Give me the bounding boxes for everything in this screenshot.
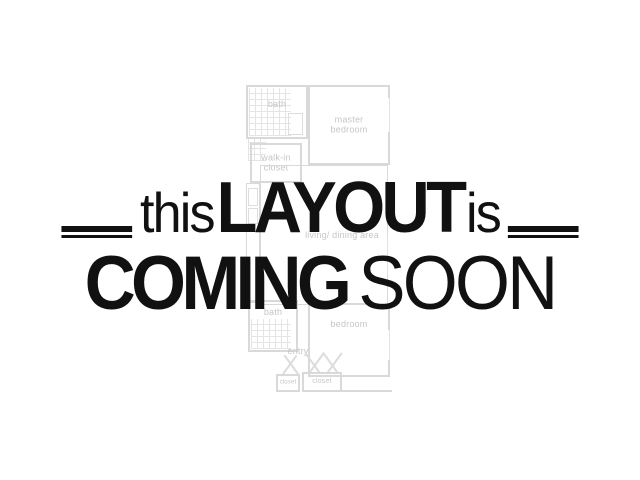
room-closet-small: closet xyxy=(276,374,300,392)
room-label: master bedroom xyxy=(310,115,388,136)
headline-word-coming: COMING xyxy=(85,246,348,322)
headline-word-soon: SOON xyxy=(358,246,555,322)
rule-bar-thin xyxy=(508,235,579,238)
bifold-door-mark xyxy=(323,351,341,373)
headline-word-this: this xyxy=(140,185,214,241)
room-closet-main: closet xyxy=(302,372,342,392)
window-marker xyxy=(387,98,392,132)
headline-word-layout: LAYOUT xyxy=(216,172,463,244)
bifold-door-mark xyxy=(305,351,323,373)
wall-segment xyxy=(342,390,392,392)
coming-soon-placeholder: bath master bedroom walk-in closet livin… xyxy=(0,0,640,480)
bath-fixture xyxy=(288,113,303,135)
headline-line-2: COMING SOON xyxy=(22,246,617,322)
room-label: bath xyxy=(248,99,306,109)
room-label: closet xyxy=(278,380,298,387)
room-label: closet xyxy=(304,378,340,386)
rule-bar-thick xyxy=(61,226,132,232)
room-master-bedroom: master bedroom xyxy=(308,85,390,165)
double-rule-right xyxy=(508,226,579,238)
headline-line-1: this LAYOUT is xyxy=(22,172,617,242)
window-marker xyxy=(387,330,392,360)
rule-bar-thin xyxy=(61,235,132,238)
headline-word-is: is xyxy=(466,185,500,241)
rule-bar-thick xyxy=(508,226,579,232)
room-bath-upper: bath xyxy=(246,85,308,139)
headline: this LAYOUT is COMING SOON xyxy=(0,172,640,322)
bifold-door-mark xyxy=(278,354,302,374)
double-rule-left xyxy=(61,226,132,238)
tile-floor xyxy=(249,88,291,136)
